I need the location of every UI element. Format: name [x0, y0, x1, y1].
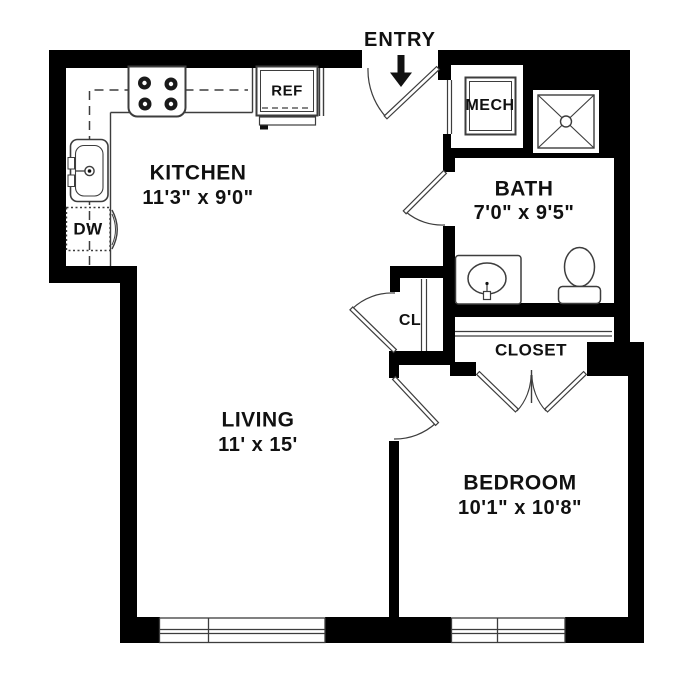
window-bedroom — [452, 618, 566, 643]
room-label-bath: BATH — [495, 179, 554, 200]
cl-door — [350, 293, 396, 353]
floor-plan: ENTRY KITCHEN 11'3" x 9'0" REF DW MECH B… — [0, 0, 697, 697]
room-dims-kitchen: 11'3" x 9'0" — [142, 188, 253, 208]
vanity-sink — [456, 256, 522, 305]
fixture-overlay — [0, 0, 697, 697]
entry-arrow-icon — [390, 55, 412, 87]
refrigerator-label: REF — [271, 84, 303, 99]
mech-door — [448, 80, 452, 134]
room-label-cl: CL — [399, 313, 421, 329]
bath-door — [403, 171, 446, 225]
room-dims-bedroom: 10'1" x 10'8" — [458, 498, 582, 518]
bedroom-door — [393, 377, 439, 439]
room-label-mech: MECH — [465, 98, 514, 114]
cl-slider — [422, 279, 427, 351]
room-label-living: LIVING — [221, 410, 294, 431]
closet-rod — [455, 332, 612, 337]
room-label-closet: CLOSET — [495, 342, 567, 359]
dishwasher-label: DW — [73, 221, 102, 238]
toilet — [559, 248, 601, 304]
room-dims-living: 11' x 15' — [218, 435, 298, 455]
room-label-kitchen: KITCHEN — [150, 163, 247, 184]
kitchen-sink — [68, 140, 108, 202]
room-dims-bath: 7'0" x 9'5" — [474, 203, 575, 223]
entry-label: ENTRY — [364, 30, 436, 50]
stove — [129, 67, 186, 117]
room-label-bedroom: BEDROOM — [463, 473, 576, 494]
window-living — [160, 618, 326, 643]
closet-doors — [477, 370, 587, 412]
shower — [538, 95, 594, 148]
